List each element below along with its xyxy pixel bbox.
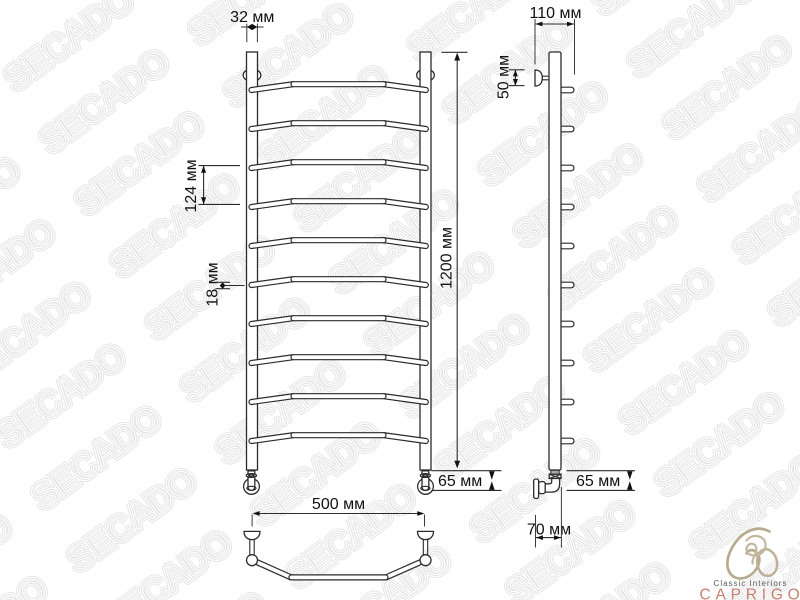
svg-text:CAPRIGO: CAPRIGO	[699, 587, 800, 600]
svg-text:500 мм: 500 мм	[312, 496, 365, 513]
svg-text:70 мм: 70 мм	[527, 522, 571, 539]
svg-text:32 мм: 32 мм	[230, 9, 274, 26]
svg-text:18 мм: 18 мм	[205, 262, 222, 306]
svg-text:1200 мм: 1200 мм	[439, 227, 456, 289]
svg-text:50 мм: 50 мм	[496, 55, 513, 99]
svg-text:65 мм: 65 мм	[576, 473, 620, 490]
svg-text:65 мм: 65 мм	[438, 473, 482, 490]
svg-text:110 мм: 110 мм	[530, 5, 582, 22]
svg-text:124 мм: 124 мм	[183, 159, 200, 212]
